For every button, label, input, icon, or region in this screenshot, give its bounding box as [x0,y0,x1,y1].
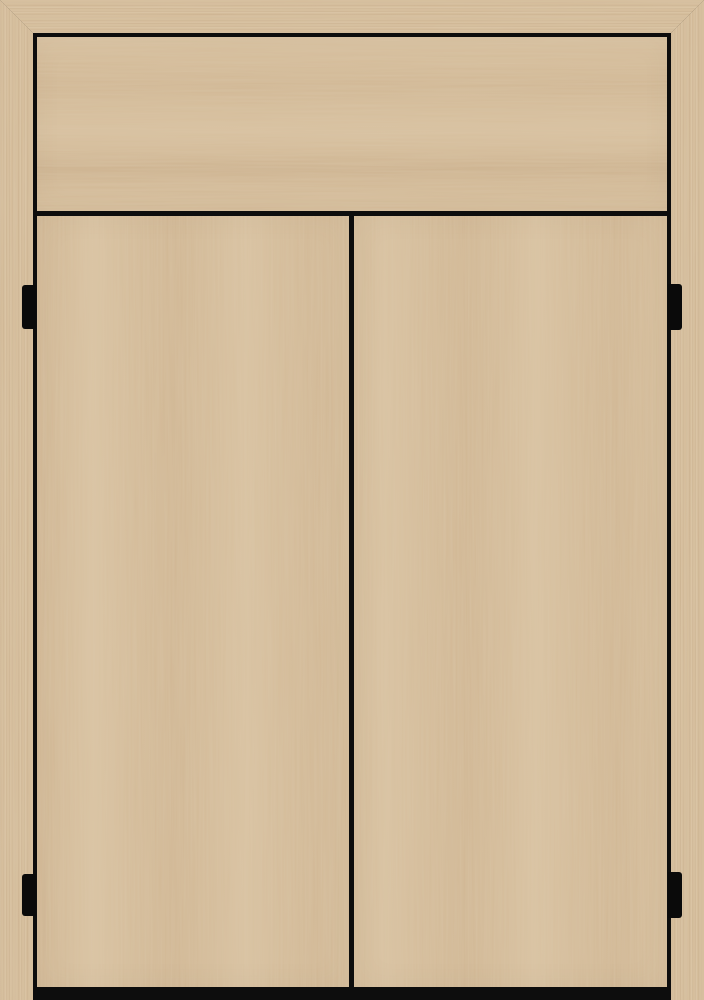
cabinet-frame-top-rail [0,0,704,33]
base-shadow [37,987,667,1000]
wood-grain-texture [0,0,33,1000]
hinge-top-right [668,284,682,330]
cabinet-frame-right-stile [671,0,704,1000]
right-door [354,216,667,987]
hinge-bottom-left [22,874,36,916]
hinge-top-left [22,285,36,329]
wood-grain-texture [37,37,667,211]
top-panel [37,37,667,211]
wood-grain-texture [354,216,667,987]
wood-grain-texture [37,216,349,987]
wood-grain-texture [0,0,704,33]
left-door [37,216,349,987]
cabinet [0,0,704,1000]
cabinet-frame-left-stile [0,0,33,1000]
hinge-bottom-right [668,872,682,918]
wood-grain-texture [671,0,704,1000]
reveal-gap-right [667,37,671,1000]
